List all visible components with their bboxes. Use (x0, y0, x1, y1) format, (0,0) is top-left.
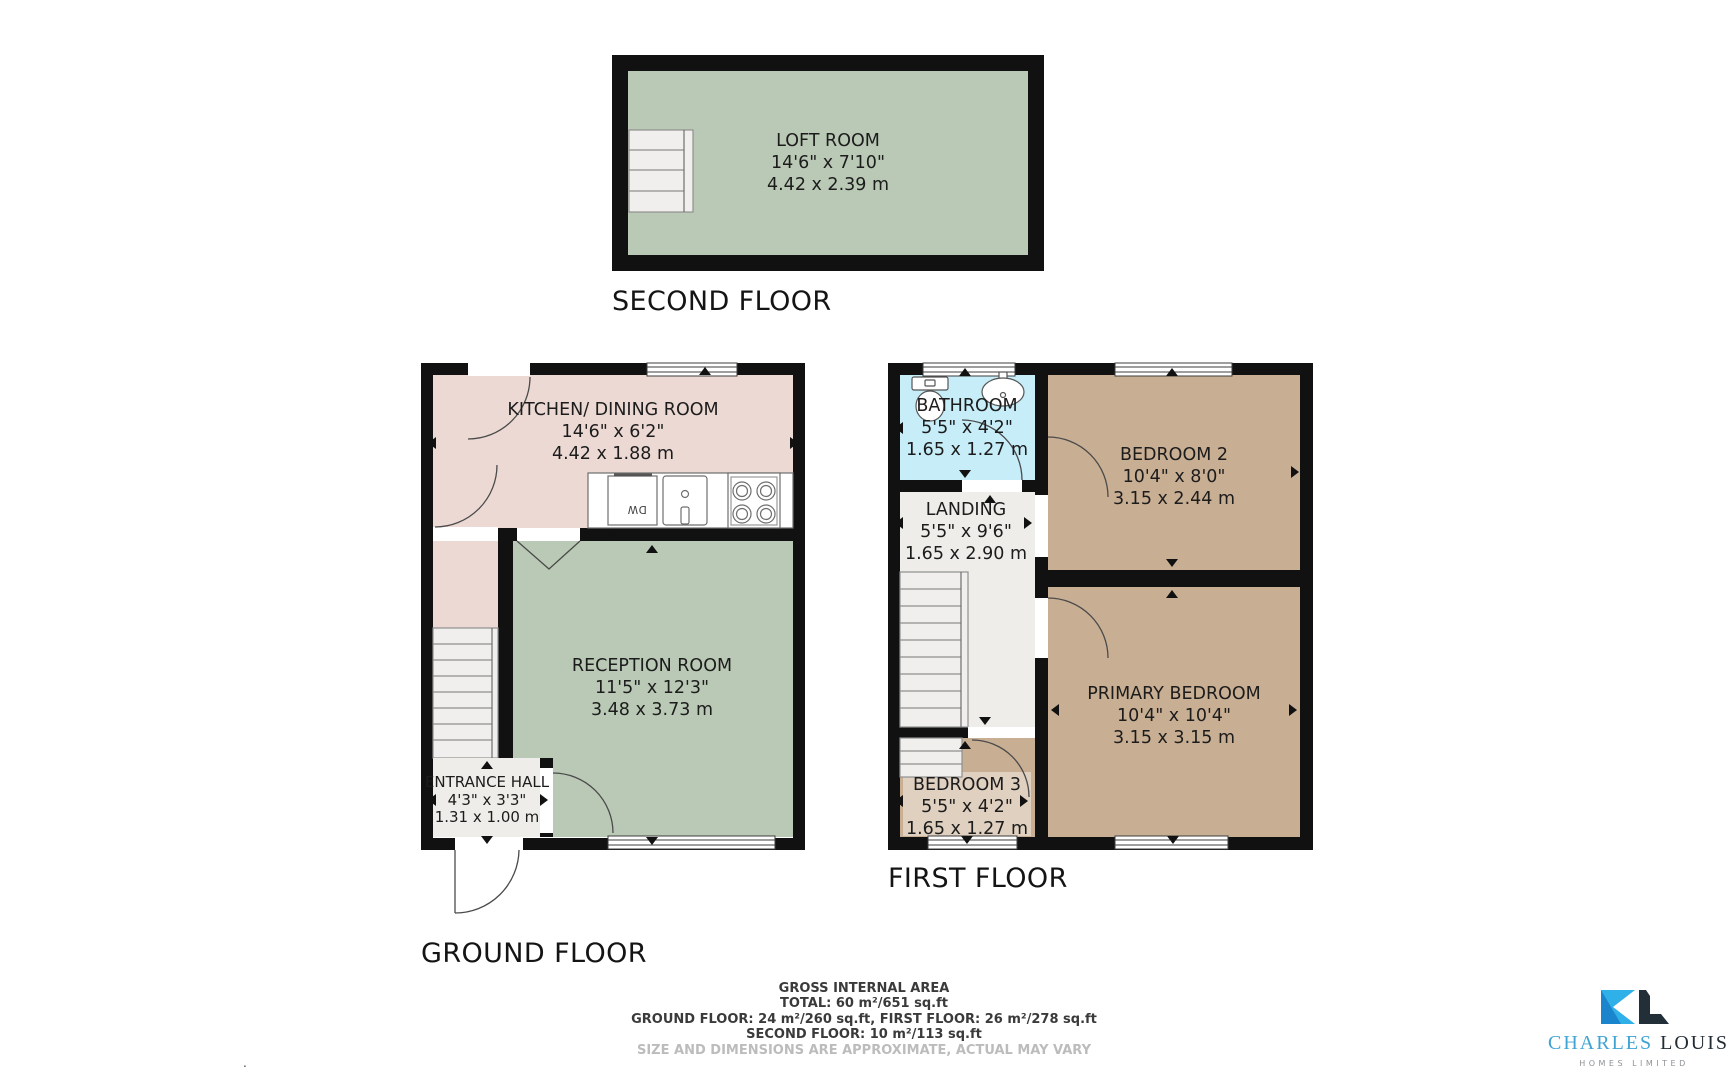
room-dim-imperial: 5'5" x 4'2" (906, 796, 1028, 818)
room-label-reception: RECEPTION ROOM 11'5" x 12'3" 3.48 x 3.73… (572, 655, 732, 721)
gross-internal-area-block: GROSS INTERNAL AREA TOTAL: 60 m²/651 sq.… (631, 981, 1097, 1058)
room-label-bedroom2: BEDROOM 2 10'4" x 8'0" 3.15 x 2.44 m (1113, 444, 1235, 510)
footer-total: TOTAL: 60 m²/651 sq.ft (631, 996, 1097, 1011)
second-floor-title: SECOND FLOOR (612, 286, 832, 317)
room-dim-imperial: 5'5" x 4'2" (906, 417, 1028, 439)
door-opening (433, 527, 498, 541)
logo-tagline: HOMES LIMITED (1548, 1059, 1720, 1068)
room-name: ENTRANCE HALL (424, 774, 550, 792)
footer-ground-first: GROUND FLOOR: 24 m²/260 sq.ft, FIRST FLO… (631, 1012, 1097, 1027)
ground-floor-title: GROUND FLOOR (421, 938, 647, 969)
dishwasher-label: DW (627, 503, 647, 515)
charles-louis-logo-mark-icon (1592, 988, 1676, 1030)
room-name: LANDING (905, 499, 1027, 521)
loft-stairs-icon (629, 130, 693, 212)
primary-door-opening (1035, 598, 1048, 658)
first-stairs-icon (900, 572, 968, 727)
room-name: BEDROOM 3 (906, 774, 1028, 796)
room-name: KITCHEN/ DINING ROOM (507, 399, 718, 421)
kitchen-counter (588, 473, 793, 528)
charles-louis-logo: CHARLES LOUIS HOMES LIMITED (1548, 988, 1720, 1068)
understairs-icon (900, 738, 962, 777)
room-dim-imperial: 11'5" x 12'3" (572, 677, 732, 699)
front-door-arc (455, 850, 519, 913)
stove-icon (728, 473, 780, 528)
stray-dot: . (243, 1056, 247, 1070)
room-label-bathroom: BATHROOM 5'5" x 4'2" 1.65 x 1.27 m (906, 395, 1028, 461)
room-dim-imperial: 5'5" x 9'6" (905, 521, 1027, 543)
room-dim-metric: 3.48 x 3.73 m (572, 699, 732, 721)
room-dim-metric: 3.15 x 2.44 m (1113, 488, 1235, 510)
footer-second: SECOND FLOOR: 10 m²/113 sq.ft (631, 1027, 1097, 1042)
logo-name-primary: CHARLES (1548, 1032, 1653, 1054)
room-name: BEDROOM 2 (1113, 444, 1235, 466)
room-label-bedroom3: BEDROOM 3 5'5" x 4'2" 1.65 x 1.27 m (906, 774, 1028, 840)
room-name: PRIMARY BEDROOM (1087, 683, 1261, 705)
room-label-loft: LOFT ROOM 14'6" x 7'10" 4.42 x 2.39 m (767, 130, 889, 196)
footer-heading: GROSS INTERNAL AREA (631, 981, 1097, 996)
room-name: RECEPTION ROOM (572, 655, 732, 677)
first-floor-title: FIRST FLOOR (888, 863, 1068, 894)
room-dim-metric: 4.42 x 1.88 m (507, 443, 718, 465)
room-label-entrance-hall: ENTRANCE HALL 4'3" x 3'3" 1.31 x 1.00 m (424, 774, 550, 827)
kitchen-sink-icon (663, 476, 707, 525)
reception-window (608, 836, 775, 849)
footer-disclaimer: SIZE AND DIMENSIONS ARE APPROXIMATE, ACT… (631, 1043, 1097, 1058)
dishwasher-icon (608, 476, 657, 525)
room-dim-imperial: 14'6" x 7'10" (767, 152, 889, 174)
room-dim-imperial: 4'3" x 3'3" (424, 791, 550, 809)
back-door-opening (468, 363, 530, 376)
room-dim-metric: 4.42 x 2.39 m (767, 174, 889, 196)
room-dim-metric: 1.65 x 1.27 m (906, 818, 1028, 840)
kitchen-window (647, 363, 737, 376)
room-dim-metric: 3.15 x 3.15 m (1087, 727, 1261, 749)
room-dim-metric: 1.65 x 1.27 m (906, 439, 1028, 461)
room-dim-metric: 1.31 x 1.00 m (424, 809, 550, 827)
room-dim-imperial: 10'4" x 10'4" (1087, 705, 1261, 727)
room-label-landing: LANDING 5'5" x 9'6" 1.65 x 2.90 m (905, 499, 1027, 565)
bedroom2-door-opening (1035, 495, 1048, 557)
room-label-kitchen: KITCHEN/ DINING ROOM 14'6" x 6'2" 4.42 x… (507, 399, 718, 465)
room-name: LOFT ROOM (767, 130, 889, 152)
room-label-primary-bedroom: PRIMARY BEDROOM 10'4" x 10'4" 3.15 x 3.1… (1087, 683, 1261, 749)
ground-stairs-icon (433, 628, 498, 758)
room-dim-metric: 1.65 x 2.90 m (905, 543, 1027, 565)
room-dim-imperial: 14'6" x 6'2" (507, 421, 718, 443)
logo-name: CHARLES LOUIS (1548, 1032, 1720, 1055)
logo-name-secondary: LOUIS (1660, 1032, 1729, 1054)
room-dim-imperial: 10'4" x 8'0" (1113, 466, 1235, 488)
bathroom-door-opening (962, 480, 1022, 492)
floorplan-page: DW (0, 0, 1729, 1080)
room-name: BATHROOM (906, 395, 1028, 417)
bedroom3-door-opening (968, 727, 1035, 738)
